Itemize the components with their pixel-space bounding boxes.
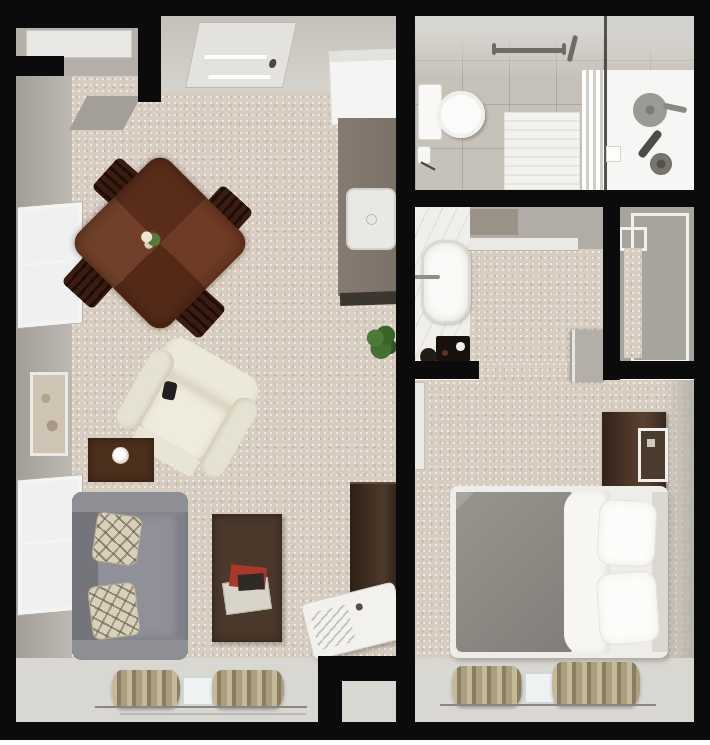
wall-closet-south [618, 361, 710, 379]
magazine [237, 573, 264, 591]
door-slat [204, 55, 267, 59]
coffee-table [212, 514, 282, 642]
vent-grille [310, 604, 356, 650]
tub-faucet [414, 275, 440, 279]
toilet-bowl [437, 91, 485, 138]
door-slat [208, 75, 271, 79]
closet-shelf [26, 30, 132, 58]
dresser-mirror [638, 428, 668, 482]
shower-floor [607, 70, 694, 190]
duvet [456, 492, 572, 652]
bath-mat [504, 112, 580, 190]
wall-top-left-thick [6, 0, 160, 28]
alcove-shelf [468, 238, 578, 250]
dressing-door-leaf[interactable] [572, 330, 605, 382]
counter-sink [346, 188, 396, 250]
toilet-paper-holder [417, 146, 431, 164]
faucet-icon [366, 214, 377, 225]
wall-left [0, 0, 16, 740]
counter-shadow [340, 291, 400, 306]
window-muntin [22, 259, 70, 266]
door-track-line [120, 713, 306, 715]
west-wall-band [16, 16, 72, 722]
curtain-rod [440, 704, 656, 706]
sofa-arm [72, 640, 188, 660]
potted-plant [362, 322, 400, 362]
sofa-arm [72, 492, 188, 512]
bed [450, 486, 668, 658]
soap-dish [606, 146, 621, 162]
grab-bar[interactable] [494, 48, 564, 53]
dresser [602, 412, 666, 488]
closet-carpet-strip [624, 248, 642, 358]
shower-curtain [582, 70, 606, 190]
window-muntin [22, 538, 70, 545]
control-dot [355, 603, 363, 611]
bedroom-east-wall-band [664, 380, 694, 658]
mirror-glint [647, 439, 655, 447]
wall-dressing-south [400, 361, 479, 379]
curtain-rod [95, 706, 307, 708]
table-lamp [112, 447, 129, 464]
wall-entry-stub-h [6, 56, 64, 76]
bar-end [492, 43, 496, 55]
alcove-vent [470, 209, 518, 235]
patio-curtain [112, 670, 180, 708]
bar-end [562, 43, 566, 55]
tray-item [442, 350, 448, 356]
wall-entry-stub-v [138, 14, 161, 102]
window [18, 202, 82, 328]
sofa [72, 492, 188, 660]
patio-curtain [552, 662, 640, 706]
throw-pillow [91, 511, 144, 567]
patio-curtain [452, 666, 522, 706]
wall-closet-west [603, 205, 620, 380]
floor-plan [0, 0, 710, 745]
patio-curtain [212, 670, 284, 708]
wall-nook-v [318, 678, 342, 740]
floor-drain [650, 153, 672, 175]
bath-tray [436, 336, 470, 362]
wall-bath-south [398, 190, 710, 207]
duvet-corner-fold [456, 492, 474, 510]
soaking-tub [421, 240, 471, 324]
shower-head [633, 93, 667, 127]
pillow [596, 570, 661, 646]
table-centerpiece [136, 226, 164, 252]
door-handle [268, 59, 277, 68]
pillow [596, 499, 657, 568]
candle-dot [456, 342, 465, 351]
front-door[interactable] [185, 22, 297, 88]
wall-bottom [6, 722, 703, 740]
wall-art [30, 372, 68, 456]
patio-door-glass[interactable] [182, 676, 214, 706]
throw-pillow [87, 581, 141, 640]
refrigerator [329, 49, 400, 125]
magazines [224, 562, 272, 614]
shower-wall-band [607, 16, 694, 72]
nook-floor [342, 681, 396, 722]
